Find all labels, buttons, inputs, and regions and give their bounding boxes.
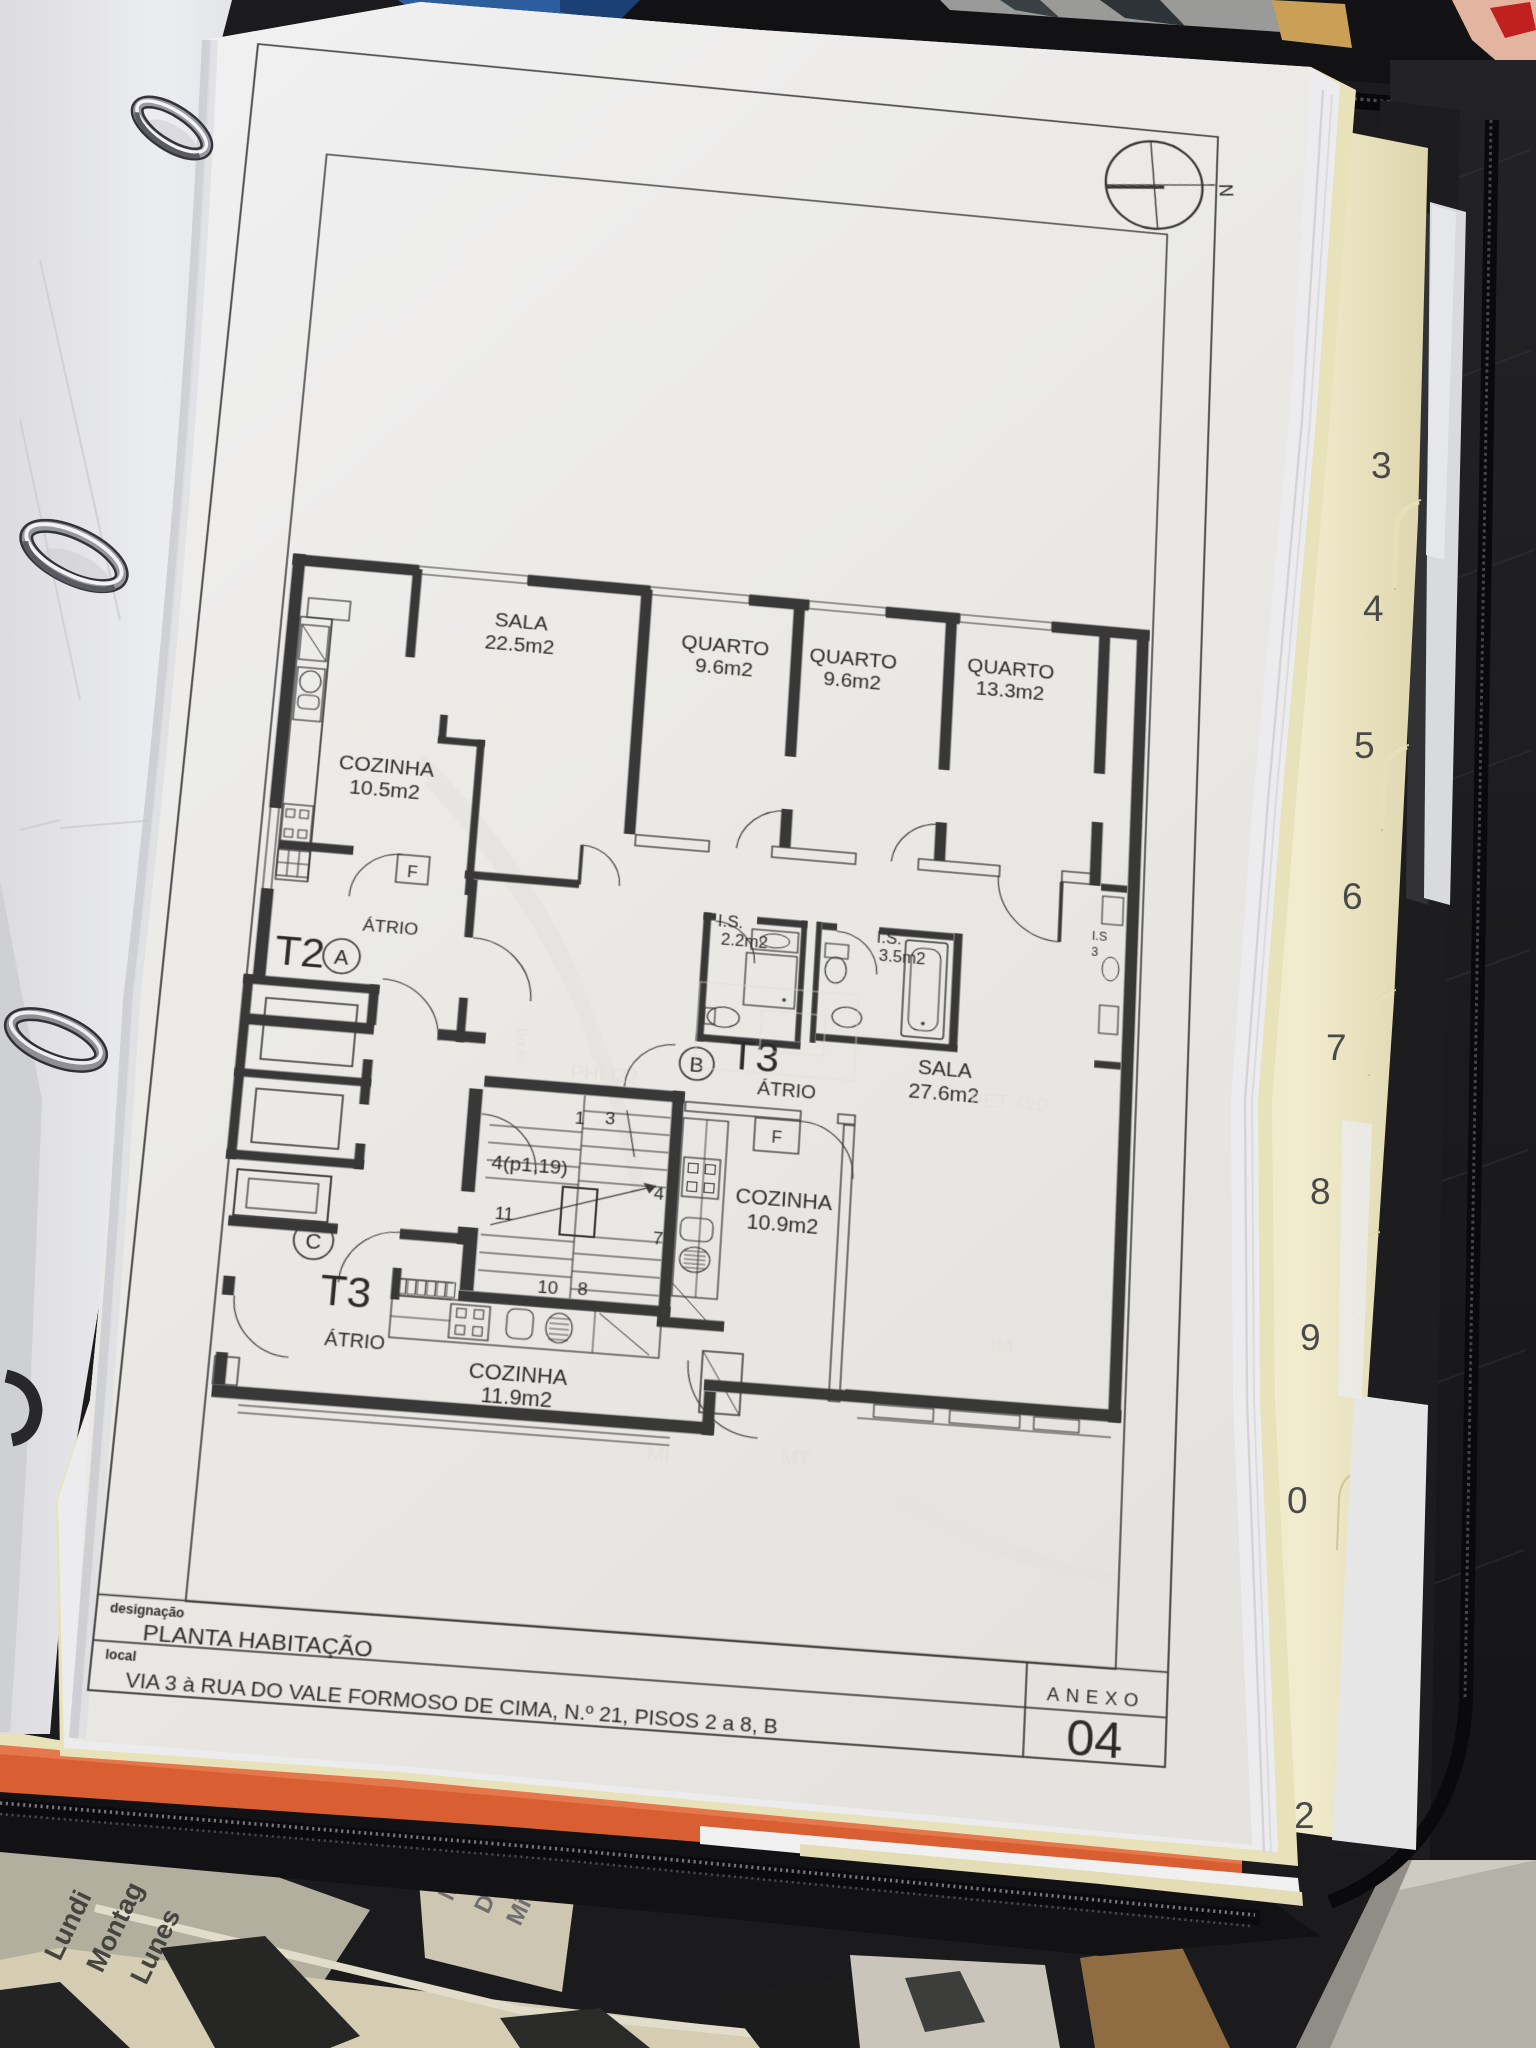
svg-text:ÁTRIO: ÁTRIO	[324, 1327, 386, 1354]
svg-text:T3: T3	[318, 1267, 373, 1318]
svg-text:10.9m2: 10.9m2	[746, 1211, 819, 1239]
svg-text:C: C	[304, 1230, 322, 1254]
svg-text:T2: T2	[273, 928, 327, 978]
svg-text:5: 5	[1354, 725, 1375, 766]
svg-text:F: F	[406, 863, 418, 882]
svg-text:I.S: I.S	[1092, 930, 1108, 944]
svg-text:2.2m2: 2.2m2	[720, 931, 768, 953]
svg-text:3: 3	[1371, 445, 1392, 486]
svg-text:4(p1,19): 4(p1,19)	[491, 1151, 569, 1179]
svg-text:B: B	[689, 1054, 705, 1077]
svg-text:7: 7	[652, 1229, 664, 1249]
svg-text:27.6m2: 27.6m2	[908, 1080, 980, 1108]
svg-text:VIA 3 à RUA DO VALE FORMOSO DE: VIA 3 à RUA DO VALE FORMOSO DE CIMA, N.º…	[124, 1668, 778, 1738]
svg-text:PET 420: PET 420	[970, 1088, 1049, 1116]
svg-text:4: 4	[653, 1184, 665, 1204]
svg-text:PLANTA HABITAÇÃO: PLANTA HABITAÇÃO	[142, 1618, 374, 1662]
svg-text:N: N	[1214, 184, 1237, 197]
svg-text:A: A	[333, 947, 350, 970]
svg-text:9.6m2: 9.6m2	[694, 655, 753, 681]
svg-text:local: local	[105, 1648, 137, 1664]
svg-text:04: 04	[1065, 1709, 1123, 1769]
svg-text:2: 2	[1294, 1795, 1315, 1836]
svg-text:6: 6	[1342, 876, 1363, 917]
svg-text:QUARTO: QUARTO	[681, 632, 770, 661]
svg-text:MI: MI	[646, 1442, 671, 1466]
svg-text:11: 11	[494, 1204, 515, 1225]
svg-text:4: 4	[1363, 588, 1384, 629]
svg-text:IM: IM	[990, 1335, 1014, 1359]
svg-text:ANEXO: ANEXO	[1046, 1684, 1145, 1712]
svg-text:I.S.: I.S.	[717, 913, 743, 933]
svg-text:ÁTRIO: ÁTRIO	[362, 915, 419, 940]
svg-text:I.S.: I.S.	[876, 929, 902, 949]
svg-text:3: 3	[604, 1109, 616, 1129]
svg-text:7: 7	[1326, 1027, 1347, 1068]
svg-text:MT: MT	[780, 1445, 811, 1470]
svg-text:ÁTRIO: ÁTRIO	[757, 1077, 817, 1103]
svg-text:22.5m2: 22.5m2	[484, 632, 555, 659]
svg-text:8: 8	[1310, 1171, 1331, 1212]
svg-text:3: 3	[1091, 946, 1098, 959]
svg-text:F: F	[771, 1129, 783, 1148]
svg-text:9: 9	[1300, 1317, 1321, 1358]
svg-text:0: 0	[1287, 1480, 1308, 1521]
svg-text:1: 1	[574, 1108, 586, 1128]
svg-text:10: 10	[537, 1277, 559, 1298]
svg-text:SALA: SALA	[917, 1057, 972, 1084]
svg-text:3.5m2: 3.5m2	[878, 947, 926, 969]
svg-text:9.6m2: 9.6m2	[823, 669, 882, 695]
svg-text:bo le: bo le	[511, 1027, 532, 1063]
svg-text:10.5m2: 10.5m2	[348, 777, 420, 805]
svg-text:8: 8	[577, 1279, 589, 1300]
svg-text:designação: designação	[109, 1602, 185, 1621]
svg-text:SALA: SALA	[494, 610, 549, 636]
svg-text:QUARTO: QUARTO	[809, 645, 898, 674]
